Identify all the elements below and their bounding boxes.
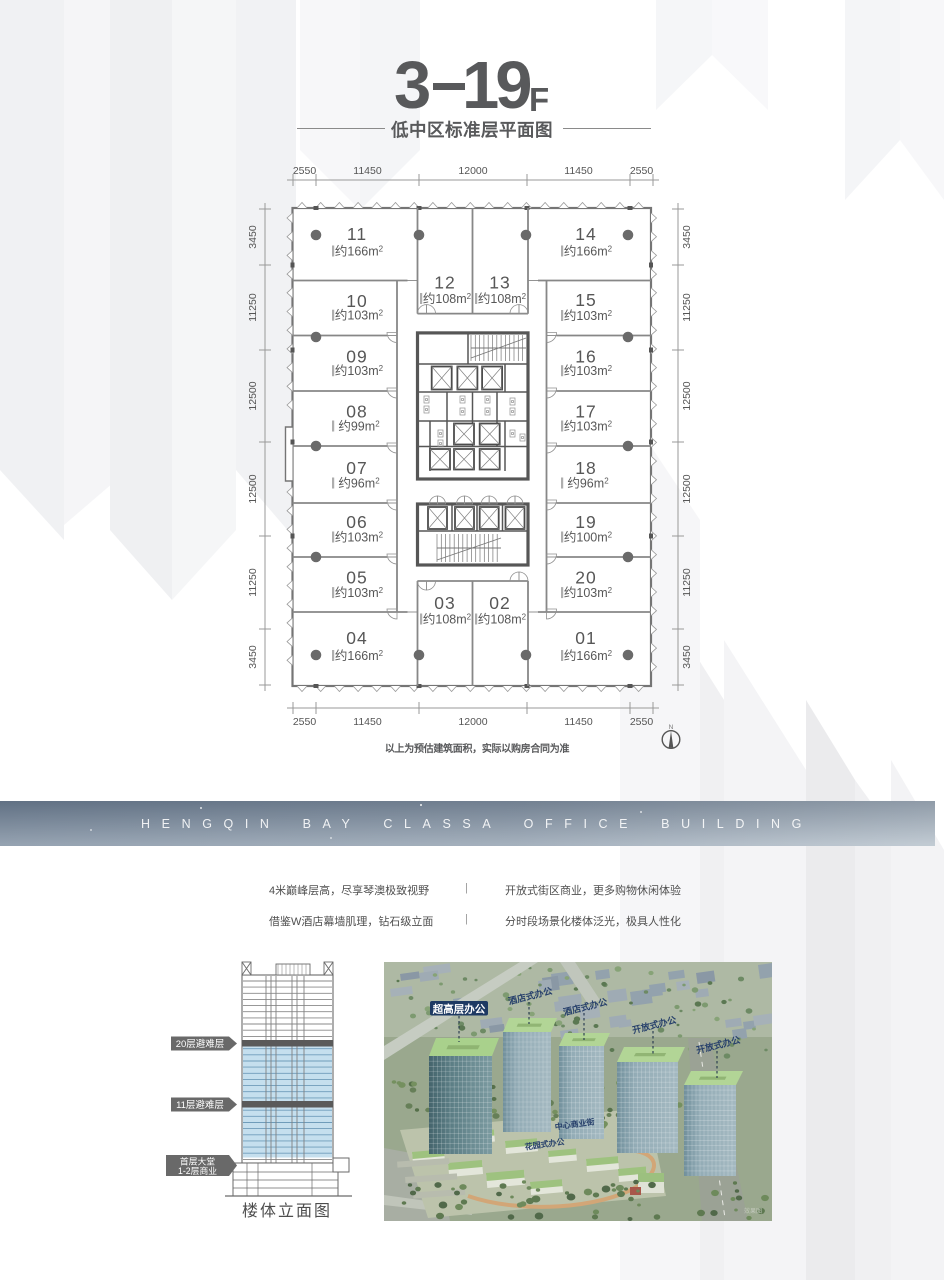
- svg-text:20层避难层: 20层避难层: [176, 1038, 225, 1050]
- svg-text:12500: 12500: [247, 474, 259, 503]
- svg-text:约166m2: 约166m2: [335, 244, 384, 259]
- svg-text:2550: 2550: [293, 716, 317, 728]
- svg-text:楼体立面图: 楼体立面图: [242, 1202, 332, 1220]
- svg-text:约108m2: 约108m2: [423, 612, 472, 627]
- svg-text:19: 19: [575, 512, 596, 532]
- svg-text:11层避难层: 11层避难层: [176, 1099, 224, 1111]
- svg-text:约108m2: 约108m2: [478, 291, 527, 306]
- svg-text:11250: 11250: [681, 568, 693, 597]
- svg-text:12500: 12500: [681, 474, 693, 503]
- svg-text:效果图: 效果图: [744, 1207, 762, 1215]
- svg-text:2550: 2550: [293, 165, 317, 177]
- svg-text:超高层办公: 超高层办公: [432, 1003, 486, 1016]
- svg-text:15: 15: [575, 290, 596, 310]
- svg-text:01: 01: [575, 628, 596, 648]
- svg-text:12000: 12000: [458, 165, 487, 177]
- svg-text:约166m2: 约166m2: [564, 648, 613, 663]
- svg-text:3450: 3450: [247, 645, 259, 669]
- svg-text:2550: 2550: [630, 165, 654, 177]
- svg-text:2550: 2550: [630, 716, 654, 728]
- svg-text:11450: 11450: [564, 716, 593, 728]
- svg-text:约100m2: 约100m2: [564, 530, 613, 545]
- svg-text:约103m2: 约103m2: [335, 585, 384, 600]
- svg-text:06: 06: [346, 512, 367, 532]
- svg-text:3450: 3450: [681, 645, 693, 669]
- svg-text:12500: 12500: [247, 381, 259, 410]
- svg-text:18: 18: [575, 458, 596, 478]
- svg-text:07: 07: [346, 458, 367, 478]
- svg-text:首层大堂: 首层大堂: [180, 1156, 215, 1167]
- svg-text:3450: 3450: [681, 225, 693, 249]
- svg-text:约103m2: 约103m2: [564, 363, 613, 378]
- svg-text:08: 08: [346, 401, 367, 421]
- svg-text:约103m2: 约103m2: [564, 585, 613, 600]
- svg-text:05: 05: [346, 568, 367, 588]
- svg-text:约103m2: 约103m2: [335, 308, 384, 323]
- svg-text:11250: 11250: [247, 568, 259, 597]
- svg-text:12: 12: [434, 273, 455, 293]
- svg-text:约96m2: 约96m2: [567, 476, 609, 491]
- svg-text:12500: 12500: [681, 381, 693, 410]
- svg-text:20: 20: [575, 568, 596, 588]
- svg-text:约103m2: 约103m2: [564, 308, 613, 323]
- svg-text:3450: 3450: [247, 225, 259, 249]
- svg-text:12000: 12000: [458, 716, 487, 728]
- svg-text:04: 04: [346, 628, 367, 648]
- svg-text:11450: 11450: [353, 716, 382, 728]
- svg-text:约166m2: 约166m2: [564, 244, 613, 259]
- svg-text:约96m2: 约96m2: [338, 476, 380, 491]
- svg-text:11450: 11450: [353, 165, 382, 177]
- svg-text:约103m2: 约103m2: [335, 363, 384, 378]
- svg-text:13: 13: [489, 273, 510, 293]
- svg-text:11250: 11250: [681, 293, 693, 322]
- svg-text:03: 03: [434, 593, 455, 613]
- svg-text:11: 11: [347, 224, 367, 244]
- svg-text:约103m2: 约103m2: [335, 530, 384, 545]
- svg-text:N: N: [669, 724, 674, 731]
- svg-text:17: 17: [575, 401, 596, 421]
- svg-text:约108m2: 约108m2: [423, 291, 472, 306]
- svg-text:约166m2: 约166m2: [335, 648, 384, 663]
- svg-text:约99m2: 约99m2: [338, 419, 380, 434]
- svg-text:11250: 11250: [247, 293, 259, 322]
- svg-text:11450: 11450: [564, 165, 593, 177]
- svg-text:1-2层商业: 1-2层商业: [178, 1165, 217, 1176]
- svg-text:02: 02: [489, 593, 510, 613]
- svg-text:14: 14: [575, 224, 596, 244]
- svg-text:以上为预估建筑面积，实际以购房合同为准: 以上为预估建筑面积，实际以购房合同为准: [385, 742, 570, 755]
- svg-text:约108m2: 约108m2: [478, 612, 527, 627]
- svg-text:约103m2: 约103m2: [564, 419, 613, 434]
